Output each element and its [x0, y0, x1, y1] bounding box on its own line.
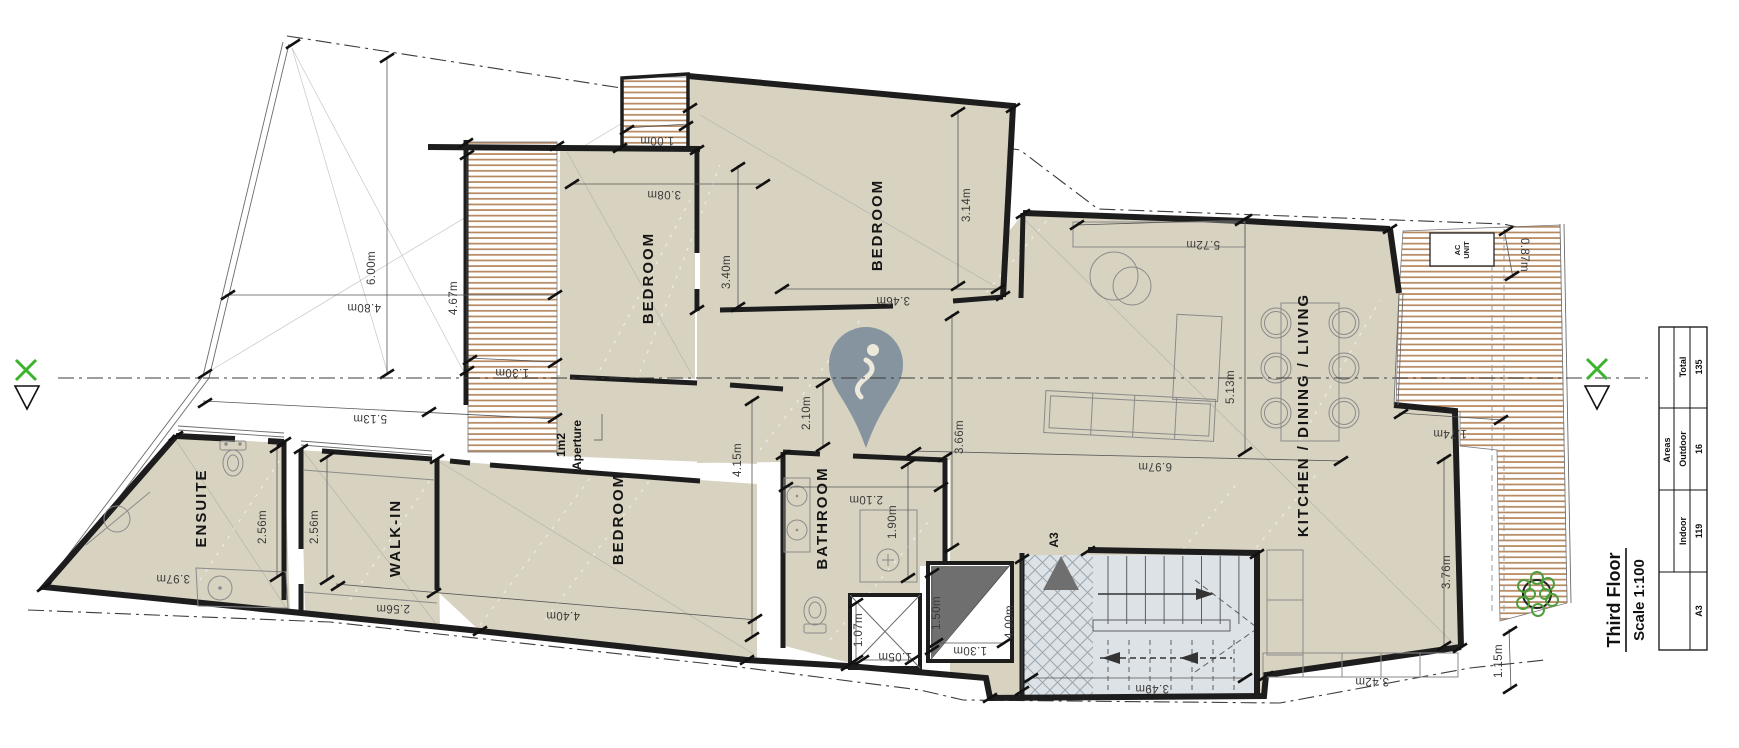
- section-triangle-left: [15, 386, 39, 409]
- dim-deck-right-bottom: 1.15m: [1493, 644, 1505, 678]
- areas-indoor-value: 119: [1694, 524, 1704, 539]
- dim-kitchen-depth: 3.76m: [1441, 555, 1453, 589]
- svg-text:Aperture: Aperture: [570, 420, 584, 470]
- dim-hall-width: 2.10m: [801, 396, 813, 430]
- scale-label: Scale 1:100: [1631, 559, 1648, 641]
- dim-ensuite-width: 2.56m: [257, 510, 269, 544]
- dim-walkin-width: 2.56m: [309, 510, 321, 544]
- room-label-bedroom-sw: BEDROOM: [610, 473, 627, 565]
- dim-front-width: 5.13m: [353, 412, 387, 424]
- dim-corridor-depth: 3.66m: [954, 420, 966, 454]
- svg-text:1m2: 1m2: [554, 433, 568, 457]
- dim-stair-depth: 4.00m: [1004, 605, 1016, 639]
- dim-bedroom-n-depth: 3.40m: [721, 255, 733, 289]
- dim-ensuite-depth: 3.97m: [156, 572, 190, 584]
- dim-void-width: 4.80m: [347, 301, 381, 313]
- dim-shaft-depth: 1.50m: [931, 596, 943, 630]
- ac-unit-label2: UNIT: [1462, 241, 1471, 259]
- floor-title: Third Floor: [1604, 553, 1624, 648]
- areas-outdoor-value: 16: [1694, 444, 1704, 454]
- floor-plan-drawing: AC UNIT A3: [0, 0, 1739, 748]
- dim-void-height: 6.00m: [366, 251, 378, 285]
- areas-total-label: Total: [1678, 357, 1688, 378]
- core-label: A3: [1047, 532, 1061, 548]
- room-label-walk-in: WALK-IN: [387, 499, 404, 577]
- dim-deck-left-height: 4.67m: [448, 281, 460, 315]
- dim-bedroom-sw-width: 4.40m: [546, 609, 580, 621]
- dim-bathroom-width: 2.10m: [849, 493, 883, 505]
- dim-shaft-width: 1.30m: [953, 644, 987, 656]
- dim-kitchen-width: 6.97m: [1138, 460, 1172, 472]
- dim-deck-top-width: 1.00m: [640, 134, 674, 146]
- dim-stair-width: 3.49m: [1135, 682, 1169, 694]
- dim-bedroom-n-width: 3.08m: [647, 188, 681, 200]
- dim-walkin-depth: 2.56m: [376, 602, 410, 614]
- stair-core: A3: [1024, 532, 1257, 695]
- room-label-ensuite: ENSUITE: [193, 468, 210, 547]
- areas-outdoor-label: Outdoor: [1678, 431, 1688, 467]
- dim-lift-depth: 1.05m: [878, 650, 912, 662]
- room-label-bedroom-n: BEDROOM: [640, 232, 657, 324]
- areas-table: Areas A3 Indoor Outdoor Total 119 16 135: [1659, 327, 1707, 650]
- dim-deck-left-width: 1.30m: [495, 366, 529, 378]
- floor-plan-sheet: AC UNIT A3: [0, 0, 1739, 748]
- green-cross-left: [16, 360, 36, 380]
- dim-counter-width: 3.42m: [1355, 675, 1389, 687]
- dim-living-depth: 5.13m: [1225, 370, 1237, 404]
- dim-bedroom-ne-depth: 3.14m: [961, 188, 973, 222]
- room-label-bathroom: BATHROOM: [814, 466, 831, 569]
- dim-living-width: 5.72m: [1186, 238, 1220, 250]
- dim-bedroom-ne-width: 3.46m: [876, 294, 910, 306]
- dim-lift-width: 1.07m: [853, 613, 865, 647]
- dim-deck-right-top: 0.87m: [1518, 238, 1530, 272]
- dim-deck-right-width: 1.74m: [1433, 427, 1467, 439]
- areas-total-value: 135: [1694, 359, 1704, 374]
- green-cross-right: [1587, 359, 1607, 379]
- room-label-kitchen: KITCHEN / DINING / LIVING: [1295, 293, 1312, 537]
- sheet-size: A3: [1694, 605, 1704, 617]
- areas-indoor-label: Indoor: [1678, 517, 1688, 545]
- dim-bedroom-sw-depth: 4.15m: [732, 443, 744, 477]
- room-label-bedroom-ne: BEDROOM: [869, 179, 886, 271]
- deck-left: [468, 142, 557, 452]
- title-block: Third Floor Scale 1:100 Areas A3 Indoor …: [1604, 327, 1707, 652]
- section-triangle-right: [1585, 386, 1609, 409]
- ac-unit-label: AC: [1453, 244, 1462, 255]
- ac-unit: AC UNIT: [1430, 233, 1494, 266]
- areas-table-title: Areas: [1662, 437, 1672, 462]
- dim-shower-depth: 1.90m: [887, 505, 899, 539]
